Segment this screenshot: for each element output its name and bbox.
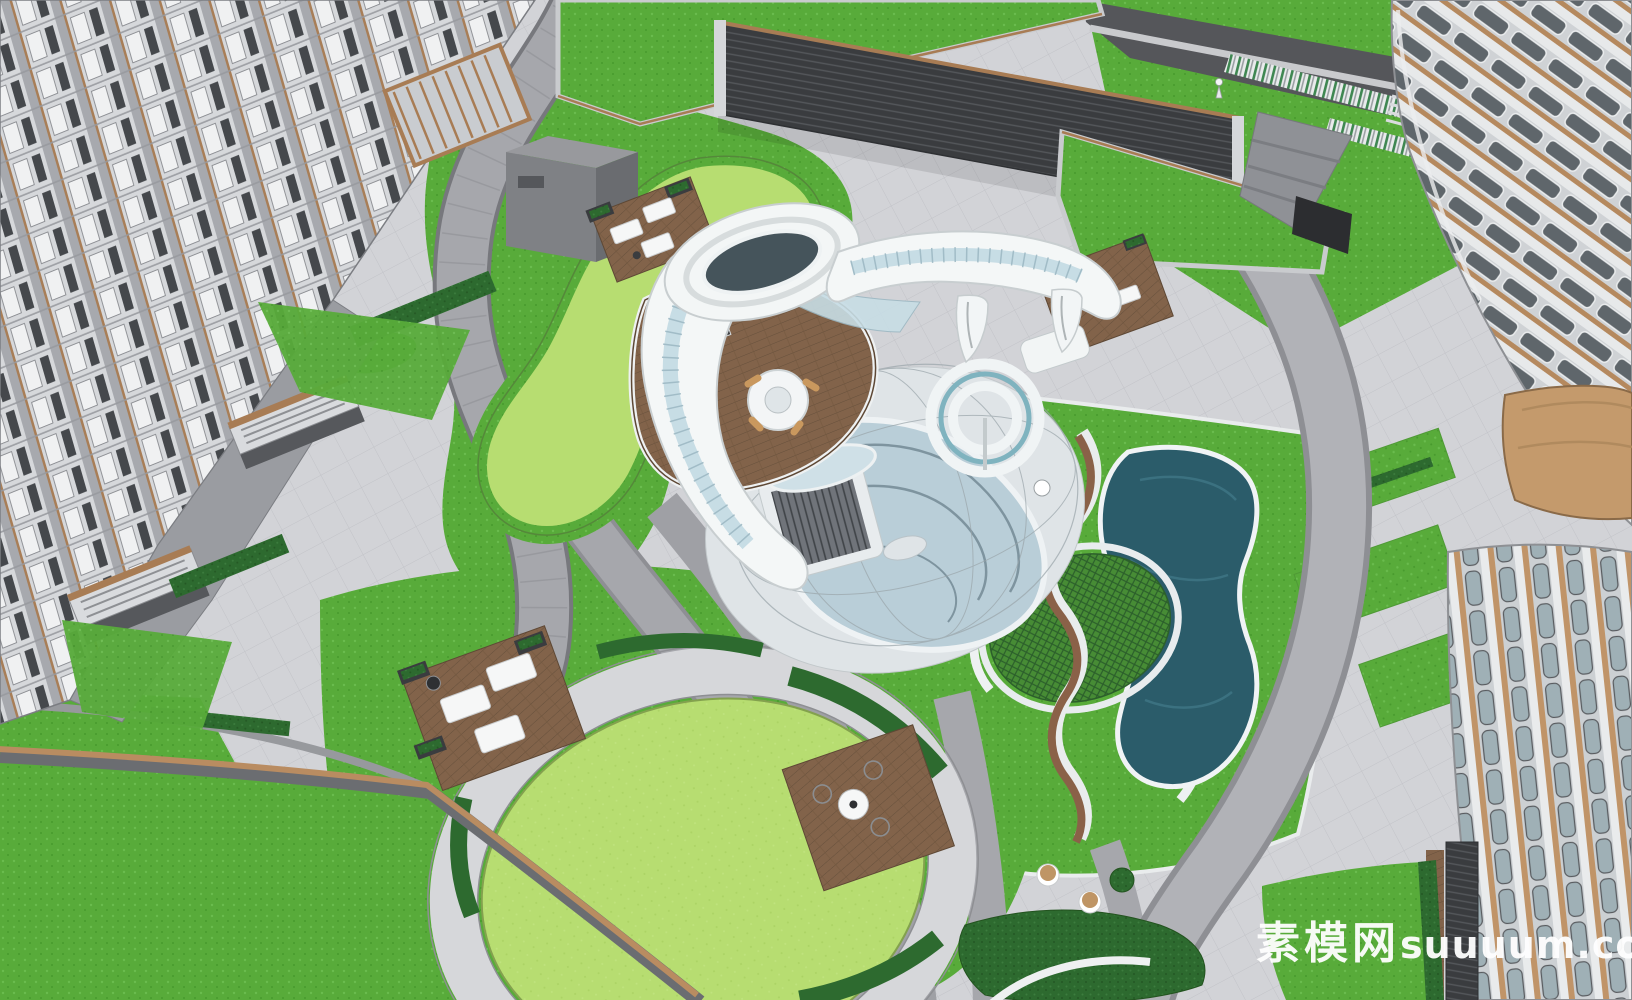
tower-louver-band (1446, 842, 1478, 1000)
stool-top (1040, 865, 1056, 881)
watermark-latin: suuuum.com (1400, 923, 1632, 967)
stool-top (1082, 892, 1098, 908)
clubhouse-wall-post (714, 20, 726, 116)
figure-head (1216, 79, 1223, 86)
shed-front (506, 152, 596, 262)
round-bar-top (765, 387, 791, 413)
rendering-viewport: 素模网suuuum.com (0, 0, 1632, 1000)
bush-ball (1110, 868, 1134, 892)
poolside-table (1034, 480, 1050, 496)
watermark-cjk: 素模网 (1256, 918, 1400, 969)
portecochere-canopy (1503, 386, 1632, 519)
rendering-canvas: 素模网suuuum.com (0, 0, 1632, 1000)
watermark: 素模网suuuum.com (1256, 918, 1632, 969)
shed-vent (518, 176, 544, 188)
